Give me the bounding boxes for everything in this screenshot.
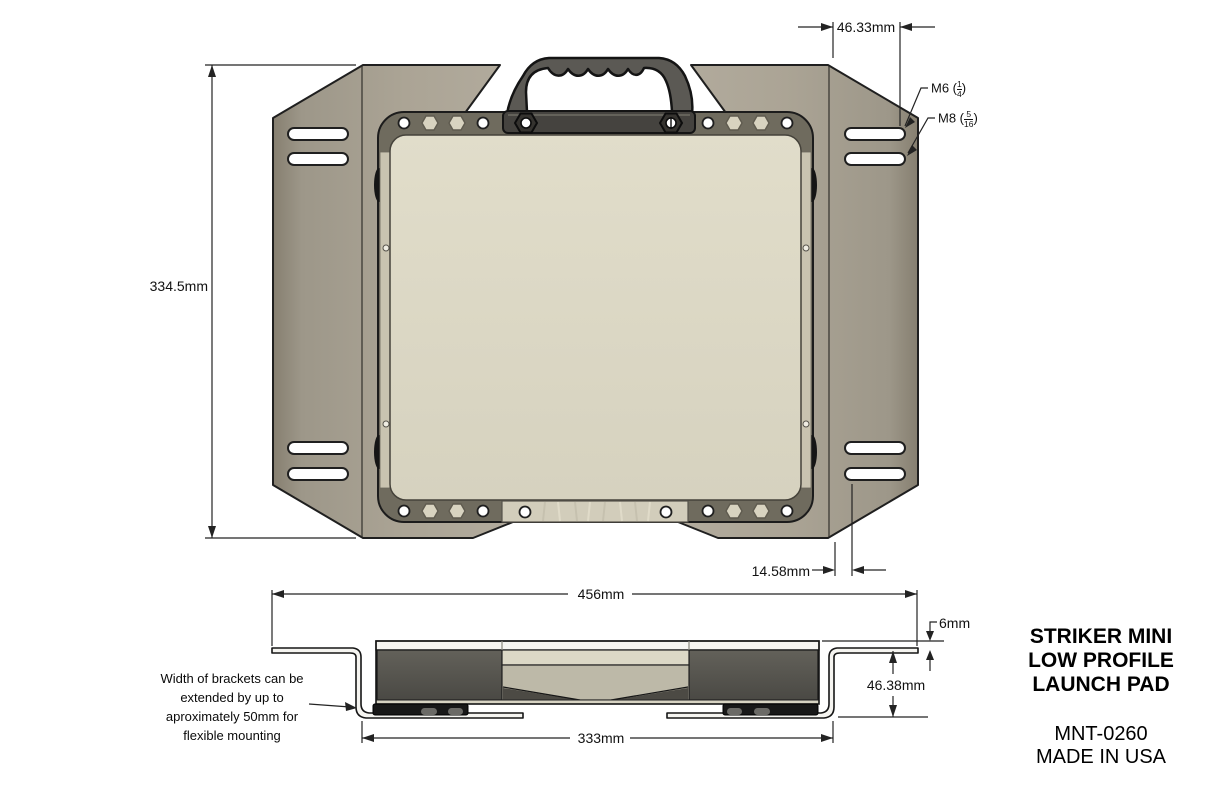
side-left-block (377, 650, 502, 700)
handle-bolt-left (515, 114, 537, 133)
drawing-sheet: 46.33mm 334.5mm 14.58mm 456mm 6mm 46.38m… (0, 0, 1224, 792)
title-block: STRIKER MINI LOW PROFILE LAUNCH PAD (1012, 625, 1190, 697)
part-info-block: MNT-0260 MADE IN USA (1012, 723, 1190, 769)
carry-handle (503, 58, 695, 133)
thread-callout-m6: M6 (14) (931, 80, 966, 99)
slot (288, 442, 348, 454)
bracket-extension-note: Width of brackets can be extended by up … (148, 669, 316, 745)
dim-456: 456mm (570, 586, 632, 602)
slot (288, 468, 348, 480)
part-number: MNT-0260 (1012, 723, 1190, 746)
side-top-plate (376, 641, 819, 650)
rail-hole (803, 245, 809, 251)
left-side-rail (380, 152, 390, 488)
bottom-mount-strip (502, 501, 688, 522)
rail-hole (383, 421, 389, 427)
side-view-drawing (272, 641, 918, 718)
side-right-block (689, 650, 818, 700)
slot (845, 442, 905, 454)
rail-hole (383, 245, 389, 251)
pad-surface (390, 135, 801, 500)
handle-grip-cutout (526, 68, 672, 112)
slot (288, 128, 348, 140)
handle-bolt-right (660, 114, 682, 133)
left-base-pad (373, 704, 468, 715)
right-side-rail (801, 152, 811, 488)
product-name-line2: LOW PROFILE (1012, 649, 1190, 673)
dim-334-5: 334.5mm (146, 278, 208, 294)
product-name-line1: STRIKER MINI (1012, 625, 1190, 649)
slot (845, 153, 905, 165)
rail-hole (803, 421, 809, 427)
dim-46-38: 46.38mm (861, 677, 931, 693)
slot (845, 128, 905, 140)
origin-label: MADE IN USA (1012, 746, 1190, 769)
dim-6: 6mm (939, 615, 970, 631)
top-view-drawing (273, 58, 918, 538)
right-base-pad (723, 704, 818, 715)
dim-333: 333mm (572, 730, 630, 746)
slot (845, 468, 905, 480)
thread-callout-m8: M8 (516) (938, 110, 978, 129)
side-center-section (502, 650, 689, 700)
dim-46-33: 46.33mm (833, 19, 899, 35)
dim-14-58: 14.58mm (748, 563, 810, 579)
slot (288, 153, 348, 165)
product-name-line3: LAUNCH PAD (1012, 673, 1190, 697)
